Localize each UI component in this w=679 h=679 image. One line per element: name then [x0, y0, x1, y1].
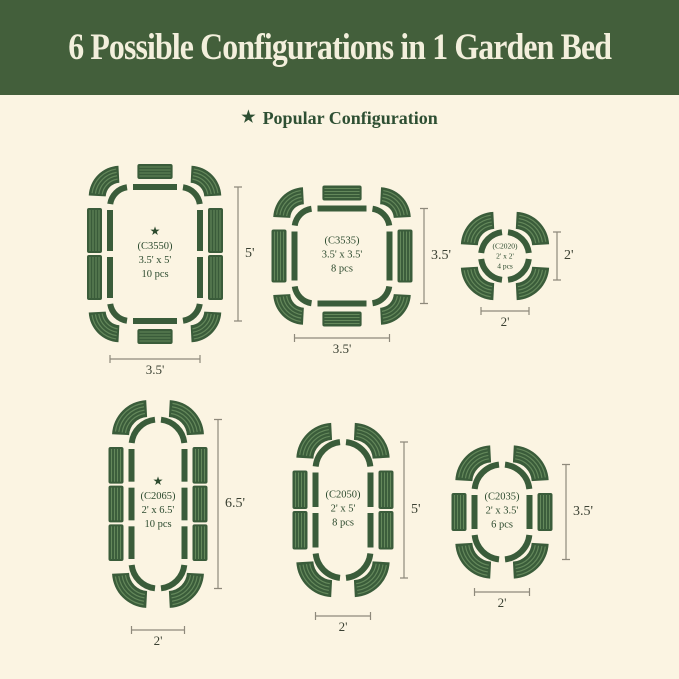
width-dimension-label: 2'	[339, 619, 348, 635]
header-banner: 6 Possible Configurations in 1 Garden Be…	[0, 0, 679, 95]
config-pieces: 4 pcs	[497, 261, 513, 270]
width-dimension-label: 2'	[154, 633, 163, 649]
config-pieces: 8 pcs	[331, 264, 353, 275]
config-c2050: ★ (C2050) 2' x 5' 8 pcs 5' 2'	[265, 405, 440, 640]
height-dimension-label: 5'	[245, 246, 255, 262]
height-dimension-label: 3.5'	[573, 504, 593, 520]
config-c3535: ★ (C3535) 3.5' x 3.5' 8 pcs 3.5' 3.5'	[260, 160, 455, 360]
config-c2035: ★ (C2035) 2' x 3.5' 6 pcs 3.5' 2'	[430, 425, 600, 615]
popular-star-icon: ★	[141, 475, 176, 487]
config-pieces: 6 pcs	[491, 520, 513, 531]
height-dimension-label: 5'	[411, 502, 421, 518]
config-code: (C3550)	[138, 241, 173, 252]
config-c2020: ★ (C2020) 2' x 2' 4 pcs 2' 2'	[440, 195, 610, 335]
bed-diagram-c2020	[440, 195, 610, 335]
config-size: 2' x 5'	[331, 504, 356, 515]
config-label-c2020: ★ (C2020) 2' x 2' 4 pcs	[493, 241, 518, 270]
config-c3550: ★ (C3550) 3.5' x 5' 10 pcs 5' 3.5'	[60, 155, 260, 385]
config-pieces: 10 pcs	[144, 520, 171, 531]
config-label-c3535: ★ (C3535) 3.5' x 3.5' 8 pcs	[322, 235, 363, 278]
page-title: 6 Possible Configurations in 1 Garden Be…	[68, 26, 611, 69]
height-dimension-label: 6.5'	[225, 496, 245, 512]
config-code: (C2035)	[485, 492, 520, 503]
height-dimension-label: 2'	[564, 248, 574, 264]
config-label-c2065: ★ (C2065) 2' x 6.5' 10 pcs	[141, 475, 176, 533]
config-pieces: 10 pcs	[141, 270, 168, 281]
popular-star-icon: ★	[138, 225, 173, 237]
config-pieces: 8 pcs	[332, 518, 354, 529]
config-code: (C2050)	[326, 490, 361, 501]
config-size: 2' x 6.5'	[142, 505, 175, 516]
width-dimension-label: 2'	[498, 595, 507, 611]
popular-legend: ★ Popular Configuration	[0, 105, 679, 131]
legend-label: Popular Configuration	[263, 108, 438, 129]
width-dimension-label: 3.5'	[333, 341, 352, 357]
config-label-c3550: ★ (C3550) 3.5' x 5' 10 pcs	[138, 225, 173, 283]
config-size: 2' x 3.5'	[486, 506, 519, 517]
config-code: (C3535)	[324, 236, 359, 247]
config-size: 2' x 2'	[496, 251, 514, 260]
star-icon: ★	[241, 110, 255, 126]
config-code: (C2020)	[493, 241, 518, 250]
config-size: 3.5' x 5'	[139, 255, 172, 266]
config-label-c2050: ★ (C2050) 2' x 5' 8 pcs	[326, 489, 361, 532]
width-dimension-label: 2'	[501, 314, 510, 330]
config-size: 3.5' x 3.5'	[322, 250, 363, 261]
width-dimension-label: 3.5'	[146, 362, 165, 378]
config-label-c2035: ★ (C2035) 2' x 3.5' 6 pcs	[485, 491, 520, 534]
config-c2065: ★ (C2065) 2' x 6.5' 10 pcs 6.5' 2'	[75, 395, 255, 655]
config-code: (C2065)	[141, 491, 176, 502]
